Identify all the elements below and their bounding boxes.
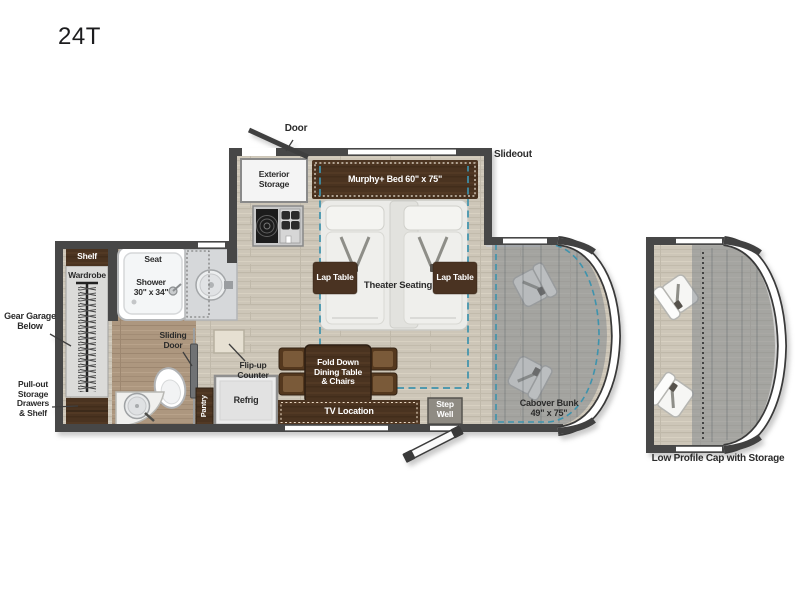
corner-sink-drain [135,404,139,408]
label-sliding-door: Sliding Door [150,331,196,350]
label-step-well: Step Well [427,400,463,419]
label-gear-garage: Gear Garage Below [2,311,58,331]
wardrobe-hangers [78,286,96,392]
cap-diagram [646,237,782,453]
bath-wall-stub [108,249,118,321]
label-lap-table-right: Lap Table [433,273,477,283]
window-cab [503,239,547,244]
label-exterior-storage: Exterior Storage [243,170,305,189]
label-seat: Seat [136,255,170,265]
floorplan-graphic [0,0,800,600]
cooktop [253,206,303,246]
door-opening [242,148,276,156]
label-low-profile-cap: Low Profile Cap with Storage [645,453,791,464]
wall-slideout-right [484,148,492,243]
label-door: Door [276,123,316,134]
shower-drain [132,300,137,305]
flip-up-counter [214,330,244,353]
label-dining-table: Fold Down Dining Table & Chairs [306,358,370,387]
label-shelf: Shelf [66,252,108,262]
label-pantry: Pantry [200,387,208,425]
window-slideout [348,150,456,155]
wall-kitchen-left [229,148,237,249]
label-flip-up-counter: Flip-up Counter [228,361,278,380]
cap-window-top [676,239,722,244]
window-bottom-left [285,426,388,431]
cap-window-bottom [676,447,722,452]
model-title: 24T [58,23,101,51]
label-murphy-bed: Murphy+ Bed 60" x 75" [313,174,477,184]
label-shower: Shower 30" x 34" [126,278,176,297]
label-cabover-bunk: Cabover Bunk 49" x 75" [509,398,589,418]
label-lap-table-left: Lap Table [313,273,357,283]
floorplan-page: 24T Door Exterior Storage Murphy+ Bed 60… [0,0,800,600]
label-tv-location: TV Location [280,406,418,416]
label-wardrobe: Wardrobe [64,271,110,281]
label-pullout-storage: Pull-out Storage Drawers & Shelf [8,380,58,418]
cap-wall-left [646,237,654,453]
label-theater-seating: Theater Seating [358,281,438,292]
label-slideout: Slideout [494,149,554,160]
window-bath [198,243,225,248]
label-refrig: Refrig [216,395,276,405]
wall-stub-vanity [227,241,237,263]
vanity-faucet [224,281,233,289]
